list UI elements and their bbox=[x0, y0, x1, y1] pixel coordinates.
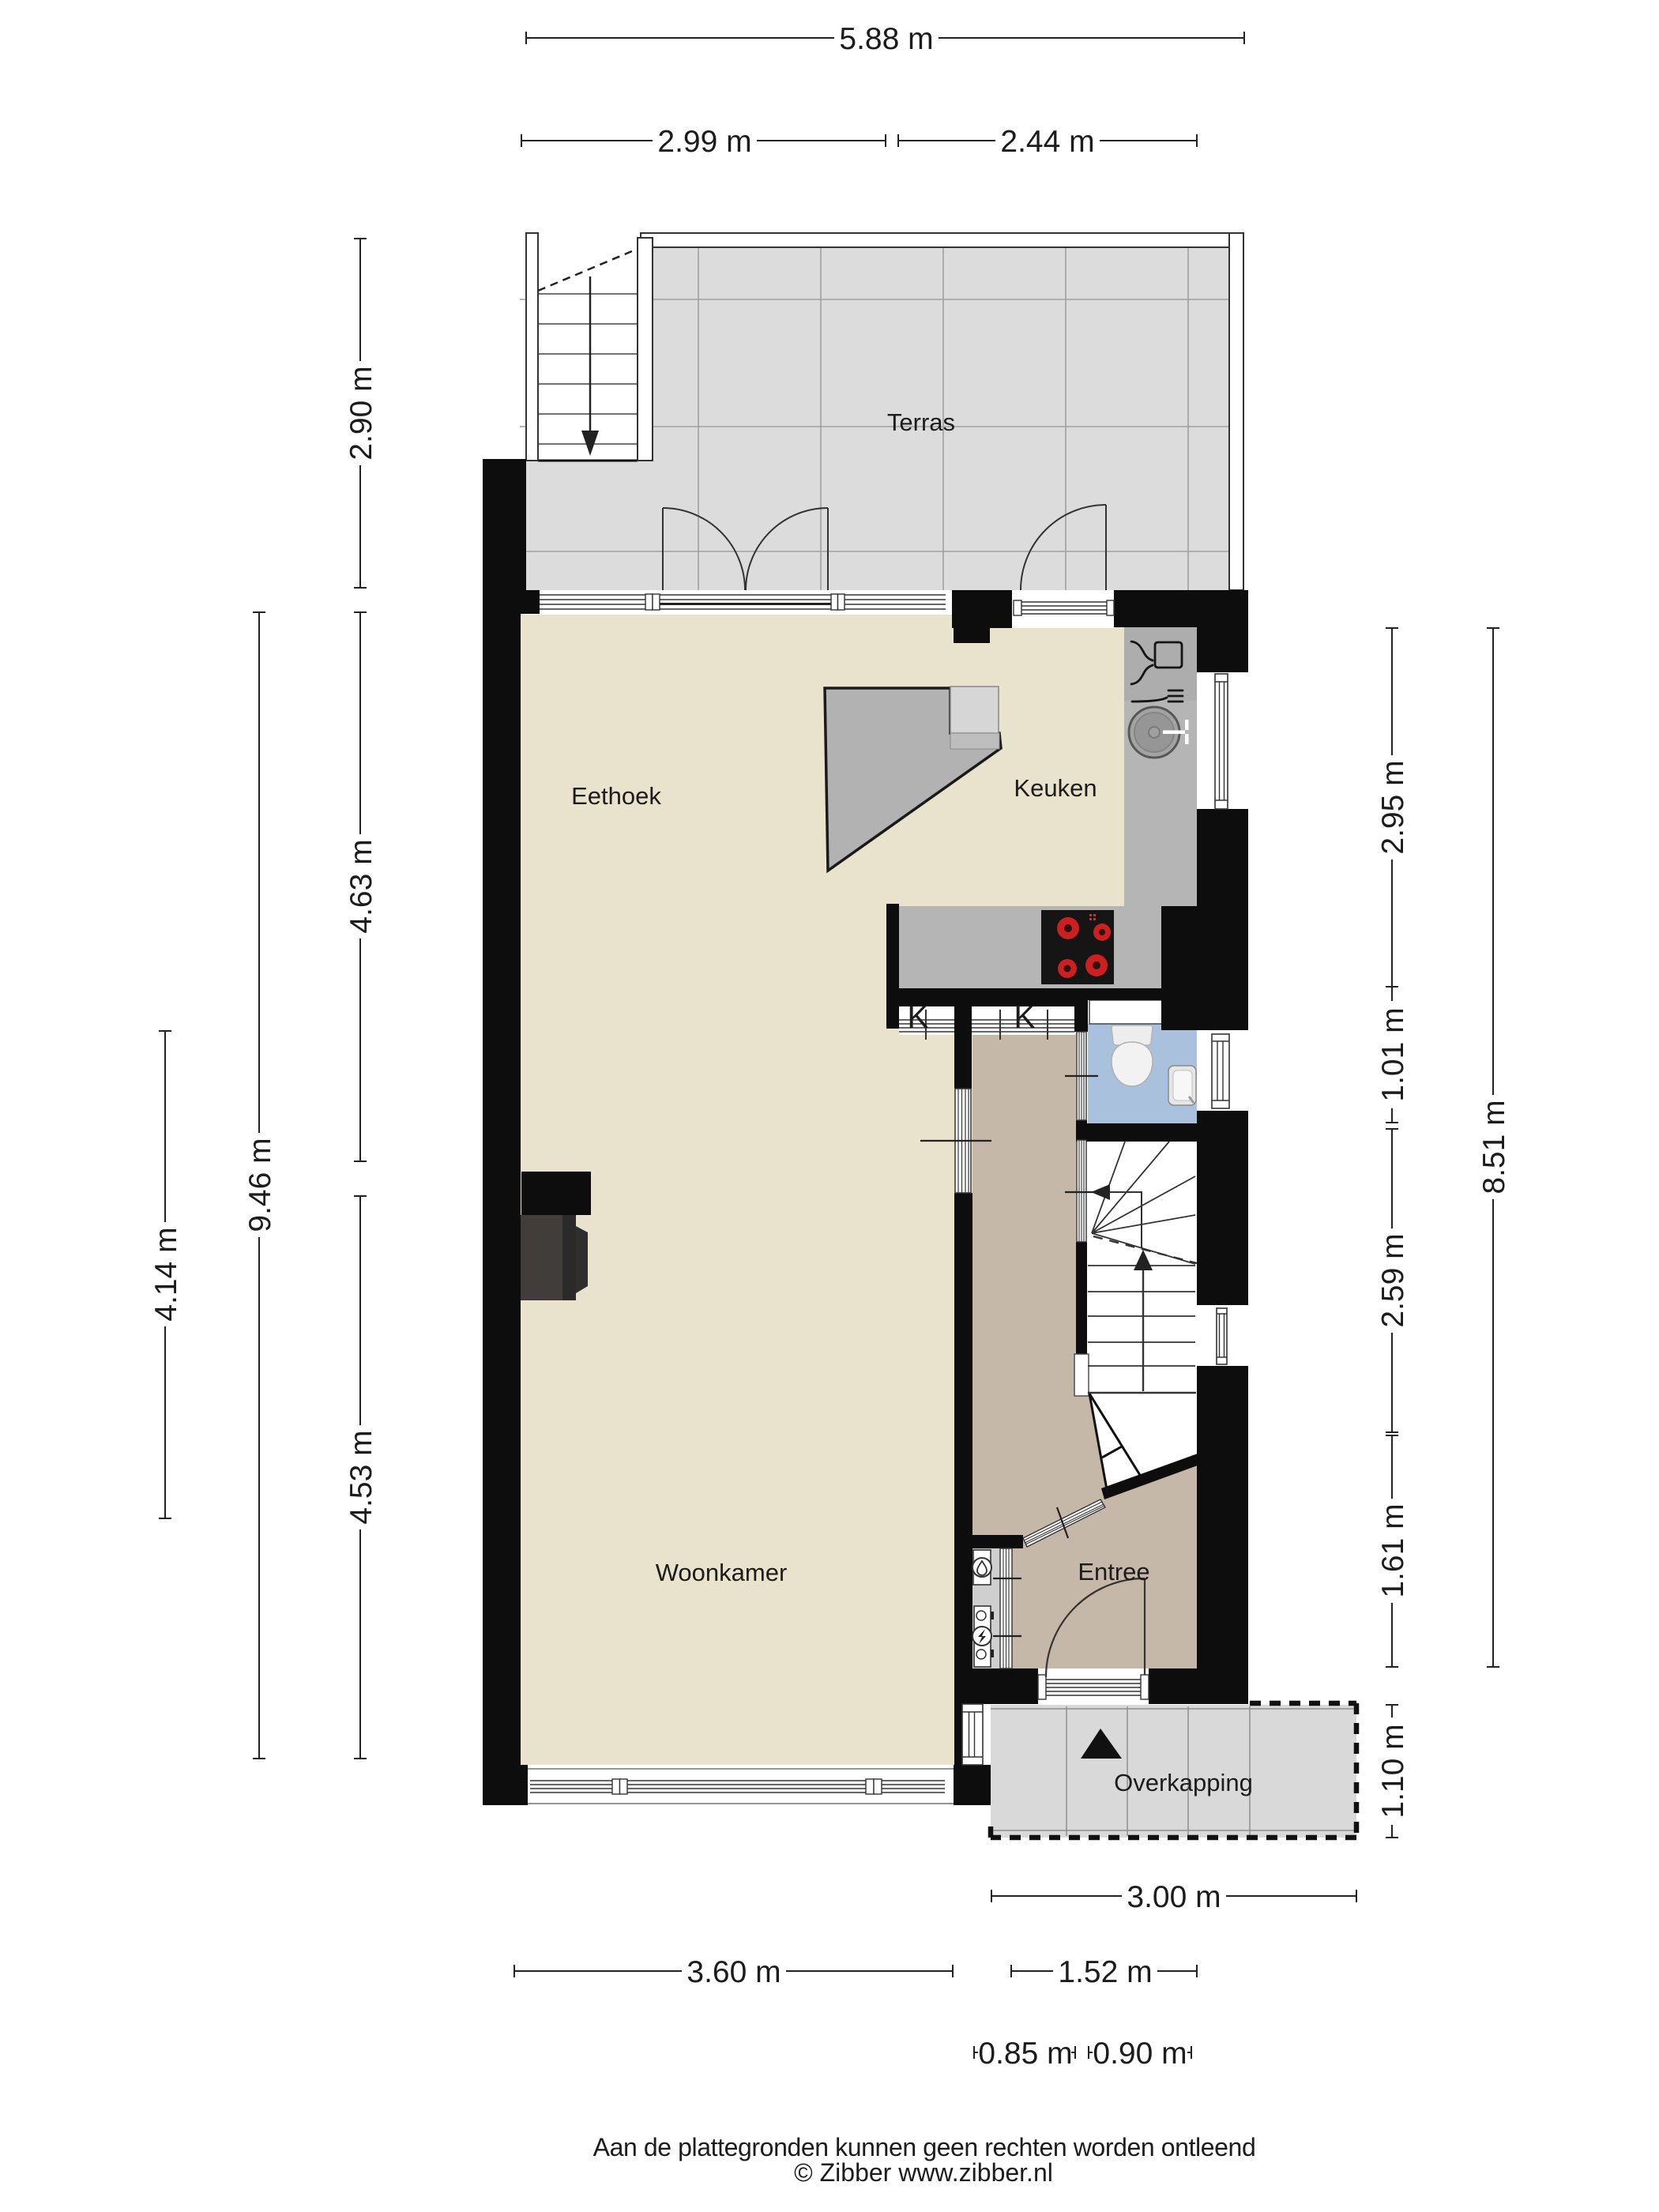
svg-text:4.63 m: 4.63 m bbox=[344, 839, 378, 933]
svg-text:9.46 m: 9.46 m bbox=[243, 1138, 277, 1232]
svg-text:1.61 m: 1.61 m bbox=[1376, 1503, 1410, 1597]
svg-text:© Zibber www.zibber.nl: © Zibber www.zibber.nl bbox=[794, 2158, 1053, 2187]
svg-text:2.95 m: 2.95 m bbox=[1376, 760, 1410, 854]
svg-text:Terras: Terras bbox=[887, 408, 955, 436]
svg-text:0.90 m: 0.90 m bbox=[1093, 2037, 1187, 2071]
svg-text:1.52 m: 1.52 m bbox=[1058, 1955, 1152, 1989]
svg-text:3.00 m: 3.00 m bbox=[1127, 1880, 1221, 1914]
svg-text:8.51 m: 8.51 m bbox=[1477, 1100, 1511, 1194]
svg-text:Keuken: Keuken bbox=[1014, 774, 1097, 802]
svg-text:Entree: Entree bbox=[1078, 1558, 1149, 1586]
svg-text:K: K bbox=[907, 999, 928, 1035]
svg-text:1.10 m: 1.10 m bbox=[1376, 1724, 1410, 1818]
svg-text:2.99 m: 2.99 m bbox=[657, 125, 751, 159]
svg-text:0.85 m: 0.85 m bbox=[978, 2037, 1072, 2071]
svg-text:Aan de plattegronden kunnen ge: Aan de plattegronden kunnen geen rechten… bbox=[593, 2133, 1256, 2161]
svg-text:Overkapping: Overkapping bbox=[1114, 1769, 1253, 1796]
svg-text:2.44 m: 2.44 m bbox=[1000, 125, 1094, 159]
svg-text:1.01 m: 1.01 m bbox=[1376, 1007, 1410, 1101]
svg-text:2.90 m: 2.90 m bbox=[344, 366, 378, 460]
svg-text:Woonkamer: Woonkamer bbox=[656, 1559, 788, 1586]
svg-text:Eethoek: Eethoek bbox=[571, 782, 661, 810]
svg-text:4.53 m: 4.53 m bbox=[344, 1430, 378, 1524]
svg-text:K: K bbox=[1014, 999, 1035, 1035]
svg-text:3.60 m: 3.60 m bbox=[687, 1955, 781, 1989]
svg-text:4.14 m: 4.14 m bbox=[149, 1227, 183, 1321]
svg-text:5.88 m: 5.88 m bbox=[839, 22, 933, 56]
svg-text:2.59 m: 2.59 m bbox=[1376, 1233, 1410, 1327]
